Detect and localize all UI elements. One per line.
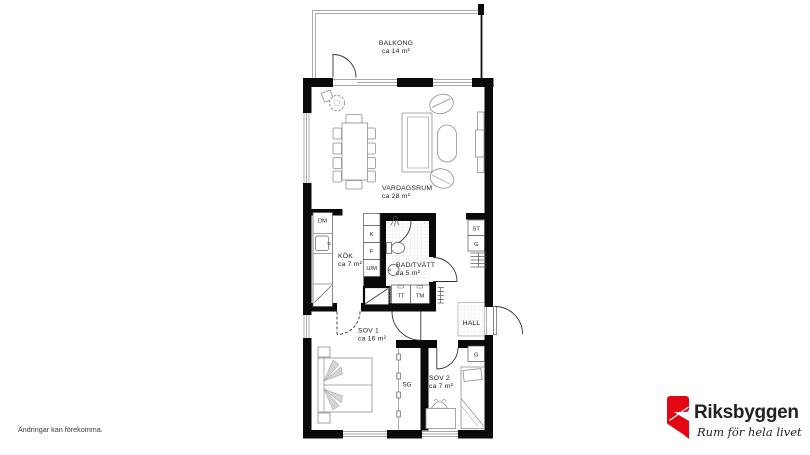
label-freezer: F [370,249,374,255]
hall: ST G HALL [438,220,487,336]
window-left-sov1 [304,315,309,338]
label-cleaning-closet: ST [472,227,480,233]
room-label-kok: KÖK [338,252,353,260]
desk [426,409,456,429]
window-top-1 [357,80,397,86]
closet-g-hall: G [468,236,485,252]
laundry-machines: TT TM [392,285,430,304]
bathroom-door [433,258,457,282]
window-top-2 [433,80,472,86]
entrance-door [487,307,523,336]
label-oven-micro: U/M [366,266,377,272]
room-label-sov1: SOV 1 [358,328,379,335]
floor-plan-svg: BALKONG ca 14 m² [0,0,810,455]
room-label-balkong: BALKONG [379,40,413,47]
room-area-bad: ca 5 m² [396,270,421,277]
window-bottom-sov2 [422,432,458,437]
kitchen-counter [313,213,333,307]
sov1-door [392,312,421,341]
room-area-vardagsrum: ca 28 m² [382,193,411,200]
appliance-column: K F U/M [364,214,381,277]
label-sliding-wardrobe: SG [403,382,412,389]
toilet-icon [387,243,405,254]
closet-g-sov2: G [468,346,485,362]
room-area-balkong: ca 14 m² [382,48,411,55]
riksbyggen-logo-icon [667,396,689,439]
riksbyggen-logo-text: Riksbyggen [694,402,799,423]
shaft [364,287,390,306]
sov2-door [437,348,458,369]
room-area-kok: ca 7 m² [338,261,363,268]
room-label-sov2: SOV 2 [429,375,450,382]
dining-set [333,115,376,190]
doors [333,54,523,369]
radiator-icon [438,288,445,304]
label-wardrobe-sov2: G [474,353,479,359]
window-left-living [304,113,309,183]
label-dishwasher: DM [318,219,327,225]
bedside-table [318,413,330,423]
riksbyggen-logo: Riksbyggen Rum för hela livet [667,396,802,439]
room-label-bad: BAD/TVÄTT [396,261,435,269]
riksbyggen-tagline: Rum för hela livet [696,425,802,439]
label-wardrobe-hall: G [474,242,479,248]
label-fridge: K [370,232,374,238]
balcony: BALKONG ca 14 m² [313,4,485,78]
kitchen-door-dashed [337,312,360,335]
balcony-door-threshold [333,80,357,86]
plant [321,90,344,110]
bathroom: TT TM BAD/TVÄTT ca 5 m² [386,216,435,303]
living-room: VARDAGSRUM ca 28 m² [321,90,484,200]
room-label-hall: HALL [463,320,481,327]
sideboard [476,112,485,173]
closet-st: ST [468,220,485,236]
bedside-table [318,347,330,357]
floor-plan-page: BALKONG ca 14 m² [0,0,810,455]
disclaimer-text: Ändringar kan förekomma. [18,425,103,434]
room-area-sov2: ca 7 m² [429,383,454,390]
room-area-sov1: ca 16 m² [358,336,387,343]
sliding-wardrobe: SG [397,348,412,430]
radiator-icon [471,253,487,267]
double-bed [318,358,372,412]
label-dryer: TT [397,294,405,300]
balcony-door [333,54,356,78]
desk-chair [432,400,448,409]
coffee-table [438,125,457,162]
single-bed [461,367,485,429]
window-bottom-sov1 [343,432,387,437]
label-washer: TM [416,294,425,300]
room-label-vardagsrum: VARDAGSRUM [382,185,432,192]
sofa [402,113,432,172]
